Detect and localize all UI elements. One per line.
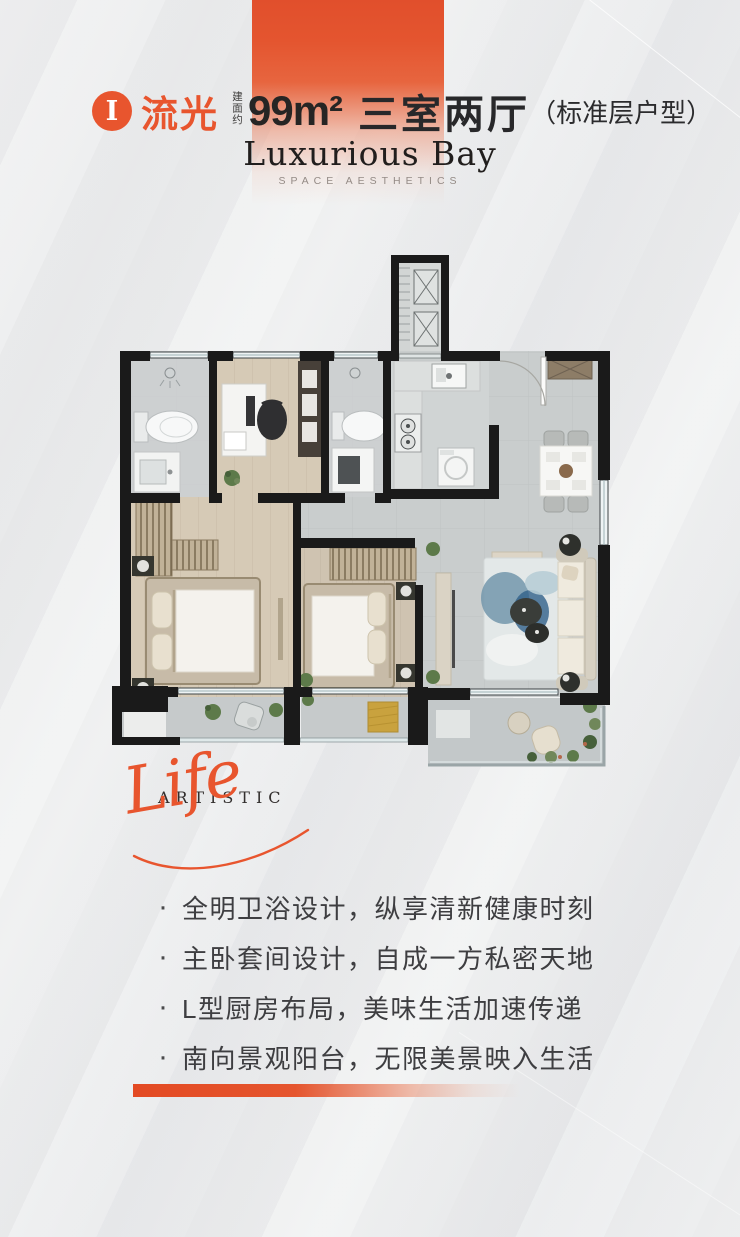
bullet-dot: · [158,990,182,1024]
feature-text: 全明卫浴设计，纵享清新健康时刻 [182,889,595,926]
bullet-dot: · [158,890,182,924]
feature-text: 主卧套间设计，自成一方私密天地 [182,939,595,976]
feature-text: 南向景观阳台，无限美景映入生活 [182,1039,595,1076]
feature-text: L型厨房布局，美味生活加速传递 [182,989,583,1026]
bullet-dot: · [158,940,182,974]
feature-item: · 全明卫浴设计，纵享清新健康时刻 [158,882,595,932]
poster-page: I 流光 建面约 99m² 三室两厅 （标准层户型） Luxurious Bay… [0,0,740,1237]
orange-accent-bar [133,1084,520,1097]
layout-label: 三室两厅 [358,82,530,140]
feature-item: · 主卧套间设计，自成一方私密天地 [158,932,595,982]
bullet-dot: · [158,1040,182,1074]
unit-header: I 流光 建面约 99m² 三室两厅 （标准层户型） [92,82,712,140]
brand-name: Luxurious Bay [0,134,740,173]
floor-plan [108,250,640,795]
unit-badge: I [92,91,132,131]
brand-block: Luxurious Bay SPACE AESTHETICS [0,134,740,187]
area-value: 99m² [248,87,342,135]
artistic-life-logo: ARTISTIC Life [126,750,346,880]
feature-list: · 全明卫浴设计，纵享清新健康时刻 · 主卧套间设计，自成一方私密天地 · L型… [158,882,595,1082]
feature-item: · L型厨房布局，美味生活加速传递 [158,982,595,1032]
unit-name: 流光 [141,84,219,138]
floor-type-note: （标准层户型） [530,93,712,130]
area-prefix-label: 建面约 [231,91,243,131]
feature-item: · 南向景观阳台，无限美景映入生活 [158,1032,595,1082]
floor-plan-svg [108,250,640,795]
brand-tagline: SPACE AESTHETICS [0,175,740,187]
